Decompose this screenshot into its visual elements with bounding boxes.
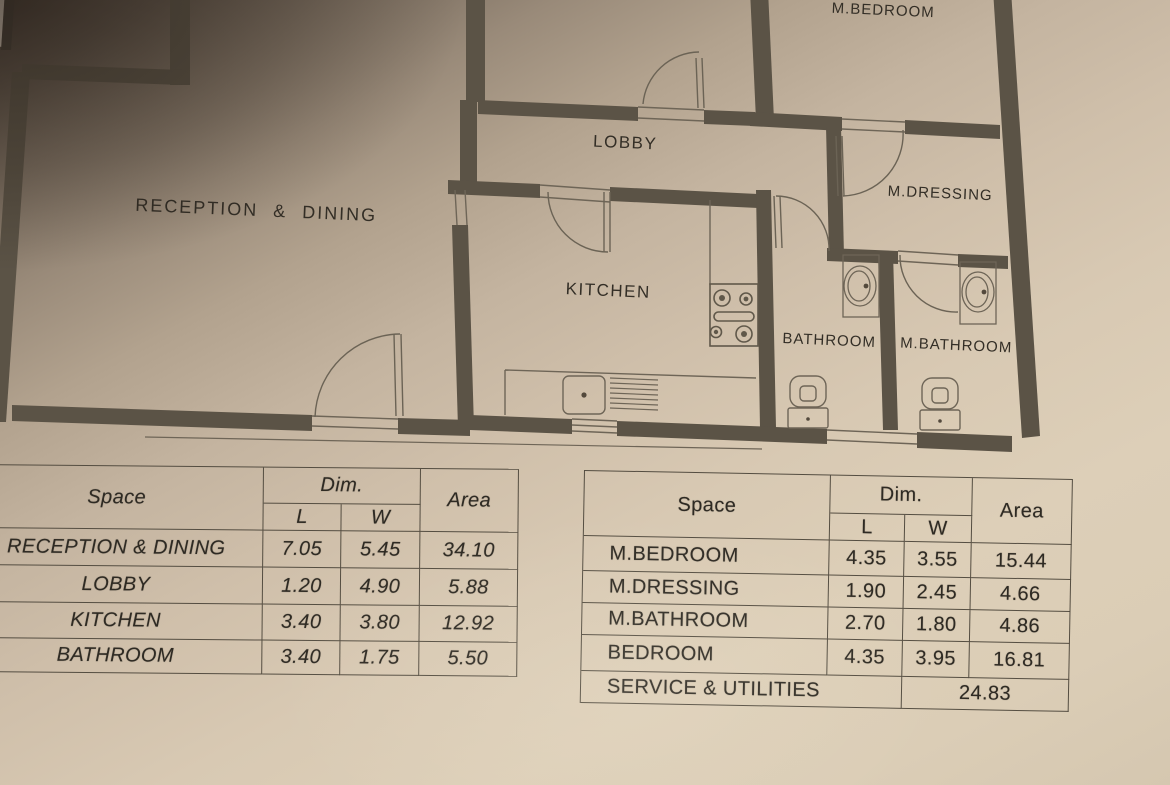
m-bathroom-basin (960, 262, 996, 324)
floor-plan-drawing: RECEPTION & DINING LOBBY KITCHEN M.BEDRO… (0, 0, 1170, 470)
bathroom-toilet (788, 376, 828, 428)
table-cell: 4.66 (970, 578, 1071, 612)
summary-row-area: 24.83 (902, 677, 1070, 712)
room-label-m-dressing: M.DRESSING (887, 183, 993, 205)
right-header-w: W (905, 515, 972, 543)
summary-row-label: SERVICE & UTILITIES (581, 671, 903, 709)
table-cell: 1.75 (340, 641, 419, 676)
right-header-l: L (830, 514, 905, 542)
bathroom-basin (843, 255, 879, 317)
left-header-w: W (341, 504, 420, 532)
door-swings (315, 52, 958, 417)
table-cell: 4.86 (970, 610, 1071, 644)
m-bathroom-toilet (920, 378, 960, 430)
left-dimensions-table: Space Dim. Area L W RECEPTION & DINING 7… (0, 464, 519, 677)
table-cell: 15.44 (971, 543, 1072, 580)
room-label-bathroom: BATHROOM (782, 330, 876, 351)
left-header-l: L (263, 504, 341, 532)
room-label-lobby: LOBBY (593, 132, 658, 154)
table-row-label: BATHROOM (0, 638, 262, 675)
table-row-label: RECEPTION & DINING (0, 528, 263, 568)
table-cell: 16.81 (969, 642, 1070, 680)
table-row-label: LOBBY (0, 565, 263, 605)
right-header-dim: Dim. (830, 476, 973, 517)
kitchen-sink (563, 376, 605, 414)
table-cell: 4.35 (827, 639, 903, 676)
kitchen-counter (505, 200, 756, 415)
table-cell: 2.45 (904, 577, 972, 610)
table-cell: 3.55 (904, 542, 972, 578)
left-header-space: Space (0, 465, 264, 531)
table-row-label: M.BEDROOM (583, 536, 830, 576)
right-header-area: Area (972, 478, 1073, 545)
table-row-label: KITCHEN (0, 602, 263, 641)
table-cell: 3.80 (340, 605, 419, 642)
stove-icon (710, 284, 758, 346)
table-cell: 1.20 (263, 568, 341, 606)
room-label-reception: RECEPTION & DINING (135, 195, 378, 226)
room-label-m-bedroom: M.BEDROOM (831, 0, 935, 21)
right-dimensions-table: Space Dim. Area L W M.BEDROOM 4.35 3.55 … (580, 470, 1073, 712)
table-cell: 7.05 (263, 531, 341, 569)
table-row-label: M.DRESSING (583, 571, 830, 608)
table-cell: 1.90 (829, 576, 905, 609)
room-label-kitchen: KITCHEN (565, 279, 651, 302)
room-label-m-bathroom: M.BATHROOM (900, 335, 1013, 357)
table-cell: 2.70 (828, 608, 904, 641)
floor-plan-photo: RECEPTION & DINING LOBBY KITCHEN M.BEDRO… (0, 0, 1170, 785)
kitchen-drainer (610, 378, 658, 410)
table-cell: 3.40 (262, 641, 340, 676)
left-header-area: Area (420, 469, 519, 533)
table-cell: 5.45 (341, 531, 420, 569)
walls (0, 0, 1040, 452)
table-cell: 3.40 (262, 605, 340, 642)
table-row-label: BEDROOM (581, 635, 828, 676)
table-cell: 5.88 (420, 569, 518, 607)
table-cell: 12.92 (419, 606, 517, 643)
table-cell: 3.95 (902, 641, 970, 678)
left-header-dim: Dim. (264, 468, 421, 505)
table-cell: 34.10 (420, 532, 518, 570)
table-row-label: M.BATHROOM (582, 603, 829, 640)
table-cell: 4.35 (829, 541, 905, 577)
table-cell: 1.80 (903, 609, 971, 642)
table-cell: 5.50 (419, 642, 517, 677)
table-cell: 4.90 (341, 568, 420, 606)
right-header-space: Space (584, 471, 831, 540)
